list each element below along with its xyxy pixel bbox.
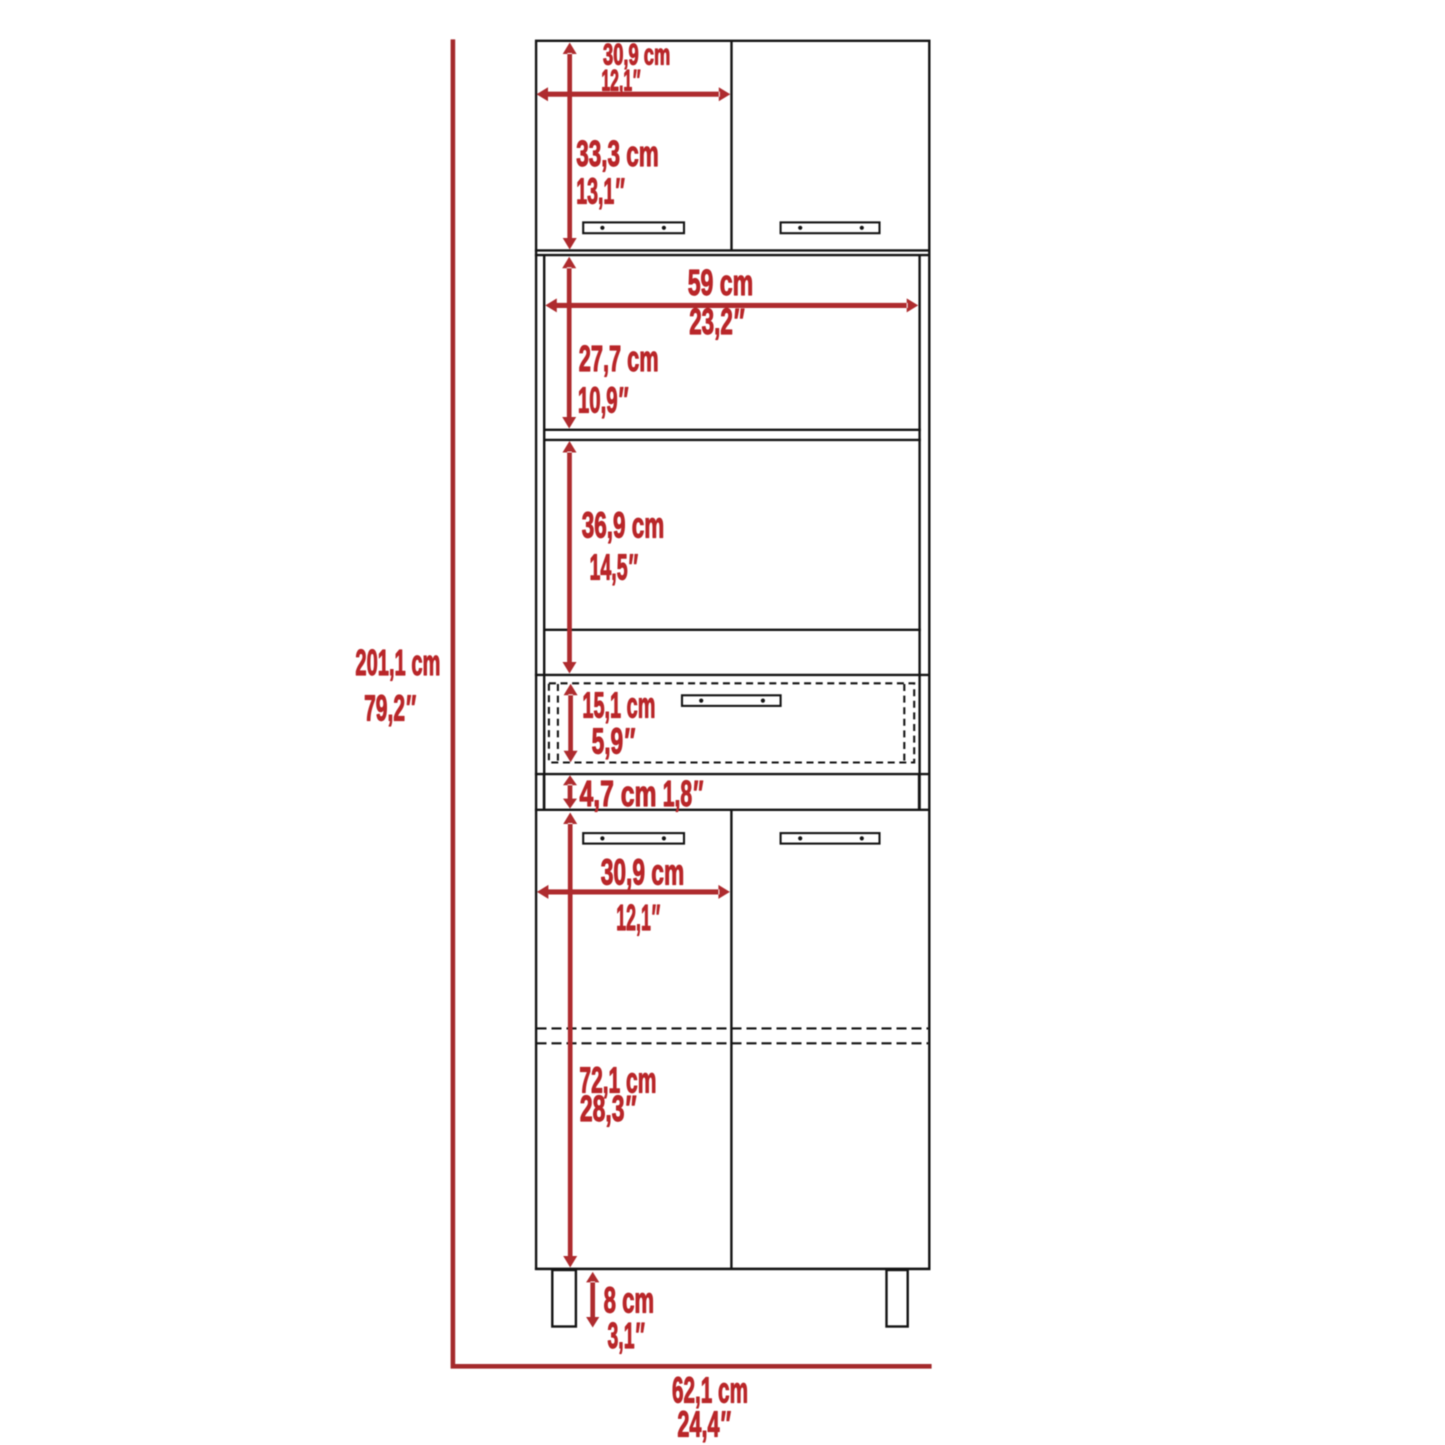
svg-text:59 cm: 59 cm [688, 262, 754, 303]
svg-text:4,7 cm: 4,7 cm [580, 773, 657, 814]
svg-text:30,9 cm: 30,9 cm [601, 851, 685, 892]
svg-text:15,1 cm: 15,1 cm [582, 684, 655, 725]
svg-text:24,4″: 24,4″ [677, 1404, 730, 1445]
svg-text:33,3 cm: 33,3 cm [576, 133, 659, 174]
svg-text:36,9 cm: 36,9 cm [582, 504, 665, 545]
svg-text:79,2″: 79,2″ [364, 688, 416, 729]
svg-text:13,1″: 13,1″ [576, 170, 624, 211]
svg-text:23,2″: 23,2″ [689, 301, 744, 342]
svg-text:28,3″: 28,3″ [580, 1088, 636, 1129]
svg-text:10,9″: 10,9″ [578, 379, 628, 420]
svg-text:12,1″: 12,1″ [601, 65, 640, 98]
svg-text:3,1″: 3,1″ [608, 1315, 645, 1356]
svg-text:5,9″: 5,9″ [592, 721, 635, 762]
svg-text:1,8″: 1,8″ [663, 773, 703, 814]
svg-text:12,1″: 12,1″ [616, 897, 660, 938]
svg-text:27,7 cm: 27,7 cm [579, 338, 659, 379]
svg-text:201,1 cm: 201,1 cm [355, 642, 440, 683]
svg-text:14,5″: 14,5″ [590, 547, 638, 588]
